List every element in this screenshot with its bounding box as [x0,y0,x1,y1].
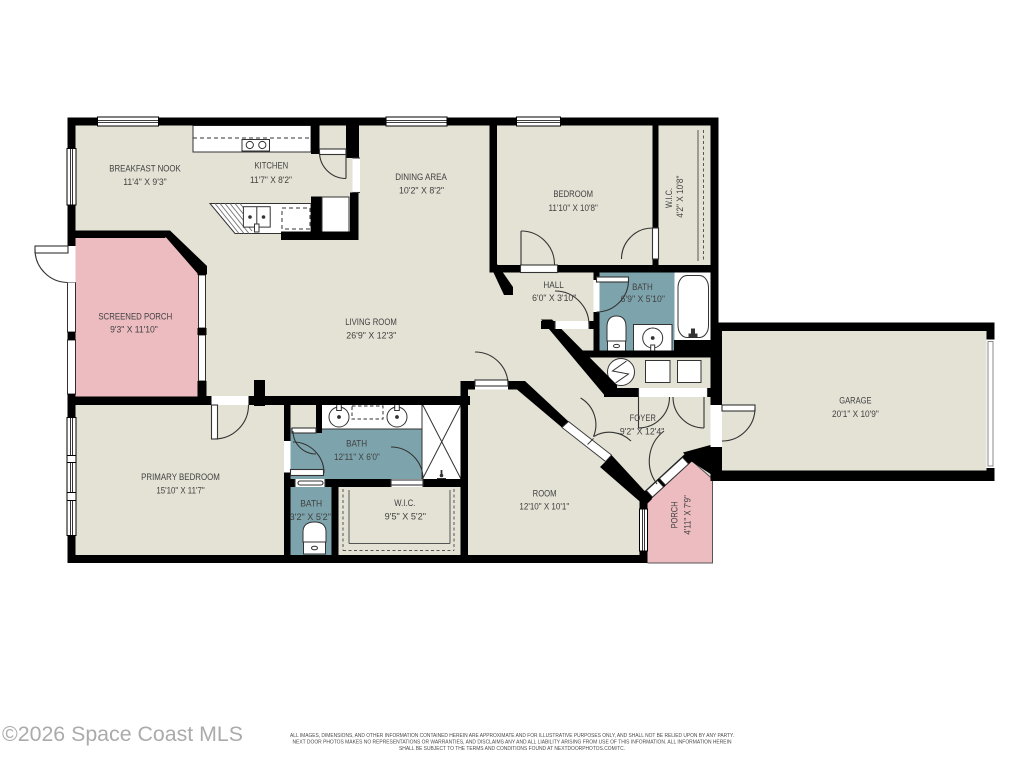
svg-text:6'9" X 5'10": 6'9" X 5'10" [621,294,665,305]
svg-text:HALL: HALL [543,280,563,291]
svg-text:W.I.C.: W.I.C. [394,498,415,509]
svg-text:FOYER: FOYER [630,413,656,424]
svg-text:GARAGE: GARAGE [839,396,871,407]
svg-text:SHALL BE SUBJECT TO THE TERMS: SHALL BE SUBJECT TO THE TERMS AND CONDIT… [399,746,625,752]
svg-text:DINING AREA: DINING AREA [395,172,447,183]
svg-text:PORCH: PORCH [670,501,681,528]
svg-text:ROOM: ROOM [533,489,557,500]
svg-text:9'5" X 5'2": 9'5" X 5'2" [385,512,426,523]
svg-text:BREAKFAST NOOK: BREAKFAST NOOK [109,164,181,175]
svg-text:11'10" X 10'8": 11'10" X 10'8" [549,203,598,214]
svg-text:BEDROOM: BEDROOM [553,189,593,200]
svg-text:15'10" X 11'7": 15'10" X 11'7" [156,486,204,497]
svg-text:LIVING ROOM: LIVING ROOM [345,317,397,328]
svg-text:26'9" X 12'3": 26'9" X 12'3" [346,331,396,342]
svg-text:11'4" X 9'3": 11'4" X 9'3" [123,177,167,188]
svg-text:3'2" X 5'2": 3'2" X 5'2" [290,512,331,523]
svg-text:4'2" X 10'8": 4'2" X 10'8" [675,176,686,218]
svg-text:ALL IMAGES, DIMENSIONS, AND OT: ALL IMAGES, DIMENSIONS, AND OTHER INFORM… [290,733,734,739]
svg-text:BATH: BATH [632,282,653,293]
svg-text:10'2" X 8'2": 10'2" X 8'2" [399,186,444,197]
svg-text:SCREENED PORCH: SCREENED PORCH [98,311,172,322]
svg-text:9'2" X 12'4": 9'2" X 12'4" [620,426,664,437]
svg-text:20'1" X 10'9": 20'1" X 10'9" [832,409,879,420]
svg-text:©2026 Space Coast MLS: ©2026 Space Coast MLS [2,723,243,746]
svg-text:W.I.C.: W.I.C. [664,188,675,208]
svg-text:4'11" X 7'9": 4'11" X 7'9" [683,495,694,534]
svg-text:BATH: BATH [346,439,367,450]
svg-text:PRIMARY BEDROOM: PRIMARY BEDROOM [141,472,220,483]
svg-text:NEXT DOOR PHOTOS MAKES NO REPR: NEXT DOOR PHOTOS MAKES NO REPRESENTATION… [293,740,732,746]
svg-text:11'7" X 8'2": 11'7" X 8'2" [250,175,292,186]
svg-text:BATH: BATH [300,499,322,510]
svg-text:KITCHEN: KITCHEN [254,161,288,172]
svg-text:6'0" X 3'10": 6'0" X 3'10" [532,293,576,304]
svg-text:9'3" X 11'10": 9'3" X 11'10" [110,325,158,336]
svg-text:12'10" X 10'1": 12'10" X 10'1" [519,501,569,512]
svg-text:12'11" X 6'0": 12'11" X 6'0" [334,452,380,463]
